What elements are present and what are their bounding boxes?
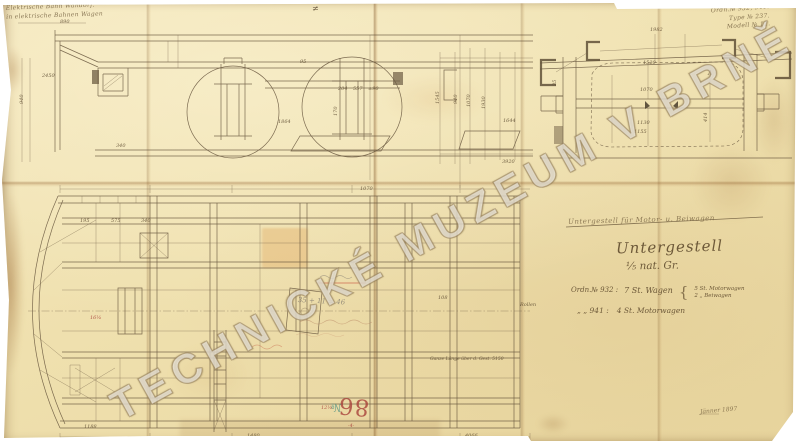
order-detail: 2 „ Beiwagen xyxy=(694,293,744,300)
dimension-label: 1070 xyxy=(360,187,373,192)
dimension-label: 1644 xyxy=(503,119,516,124)
drawing-title: Untergestell xyxy=(616,237,723,258)
dimension-label: 340 xyxy=(116,144,126,149)
dimension-label: 1070 xyxy=(467,94,472,107)
dimension-label: 16¼ xyxy=(90,316,101,321)
order-details: 5 St. Motorwagen 2 „ Beiwagen xyxy=(694,286,744,299)
archive-stamp-number: 86 xyxy=(337,392,370,421)
brace-glyph: { xyxy=(679,286,689,299)
dimension-label: 1545 xyxy=(436,91,441,104)
dimension-label: Ganze Länge über d. Gest. 5150 xyxy=(430,358,504,363)
dimension-label: 1520 xyxy=(643,61,656,66)
corner-note-top-left: Elektrische Bahn Wandorf. in elektrische… xyxy=(6,1,103,21)
order-value: 7 St. Wagen xyxy=(624,286,673,295)
dimension-label: 35 xyxy=(553,80,558,86)
dimension-label: 195 xyxy=(80,219,90,224)
dimension-label: 890 xyxy=(60,20,70,25)
order-row-1: Ordn.№ 932 : 7 St. Wagen { 5 St. Motorwa… xyxy=(571,286,744,299)
dimension-label: ≠ xyxy=(312,5,319,13)
dimension-label: 414 xyxy=(704,112,709,122)
dimension-label: 1480 xyxy=(247,434,260,439)
drawing-scale: ⅕ nat. Gr. xyxy=(626,260,679,273)
dimension-label: 575 xyxy=(111,219,121,224)
dimension-label: 95 xyxy=(300,60,306,65)
dimension-label: 170 xyxy=(334,106,339,116)
dimension-label: 340 xyxy=(141,219,151,224)
paper-sheet: 8902450940204557±90170186416443920154594… xyxy=(0,0,799,445)
order-label: „ „ 941 : xyxy=(577,306,609,315)
dimension-label: Rollen xyxy=(520,303,536,308)
dimension-label: 1982 xyxy=(650,28,663,33)
dimension-label: 204 xyxy=(338,87,348,92)
dimension-label: ·4· xyxy=(348,424,354,429)
scanned-drawing-page: 8902450940204557±90170186416443920154594… xyxy=(0,0,799,445)
numero-mark: № xyxy=(331,401,342,414)
dimension-label: 557 xyxy=(353,87,363,92)
dimension-label: 1188 xyxy=(84,425,97,430)
dimension-label: 940 xyxy=(454,94,459,104)
order-value: 4 St. Motorwagen xyxy=(617,306,685,315)
dimension-label: 940 xyxy=(20,94,25,104)
dimension-label: 4066 xyxy=(465,434,478,439)
dimension-label: 1930 xyxy=(482,96,487,109)
dimension-label: 2450 xyxy=(42,74,55,79)
order-row-2: „ „ 941 : 4 St. Motorwagen xyxy=(577,306,685,315)
order-label: Ordn.№ 932 : xyxy=(571,286,618,294)
dimension-label: 108 xyxy=(438,296,448,301)
dimension-label: 1864 xyxy=(278,120,291,125)
dimension-label: ±90 xyxy=(368,87,379,92)
side-elevation-view xyxy=(18,23,533,188)
